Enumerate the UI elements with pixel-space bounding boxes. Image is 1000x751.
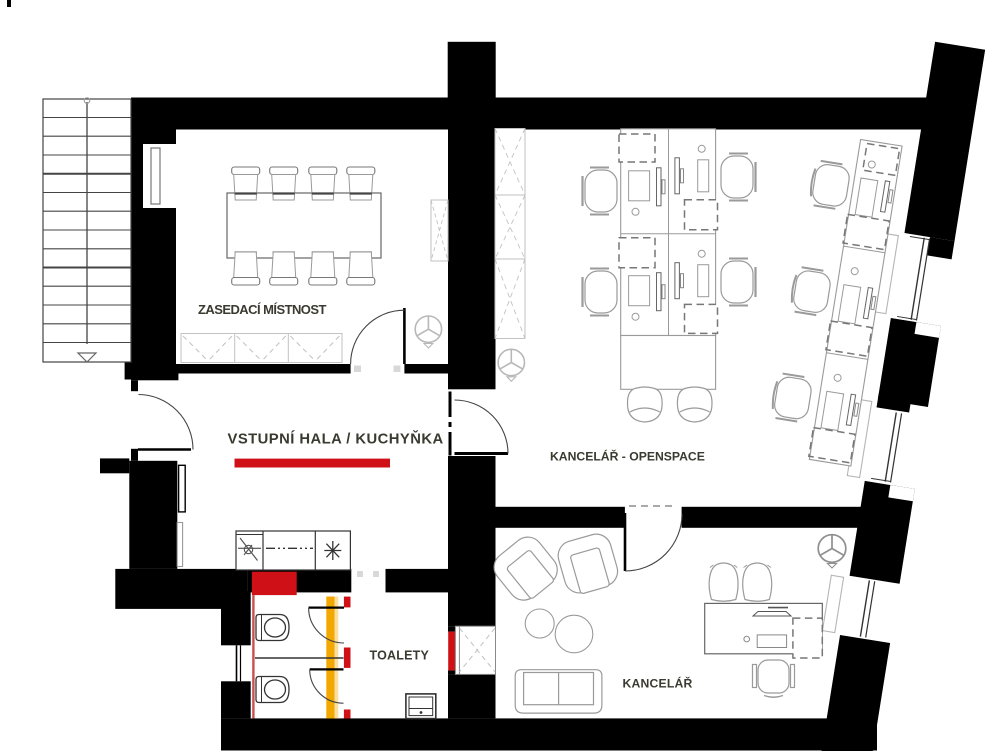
svg-text:KANCELÁŘ - OPENSPACE: KANCELÁŘ - OPENSPACE: [550, 449, 705, 464]
svg-text:ZASEDACÍ MÍSTNOST: ZASEDACÍ MÍSTNOST: [198, 302, 326, 317]
svg-text:KANCELÁŘ: KANCELÁŘ: [623, 676, 693, 691]
svg-text:VSTUPNÍ HALA / KUCHYŇKA: VSTUPNÍ HALA / KUCHYŇKA: [228, 430, 444, 448]
svg-text:TOALETY: TOALETY: [370, 649, 430, 663]
